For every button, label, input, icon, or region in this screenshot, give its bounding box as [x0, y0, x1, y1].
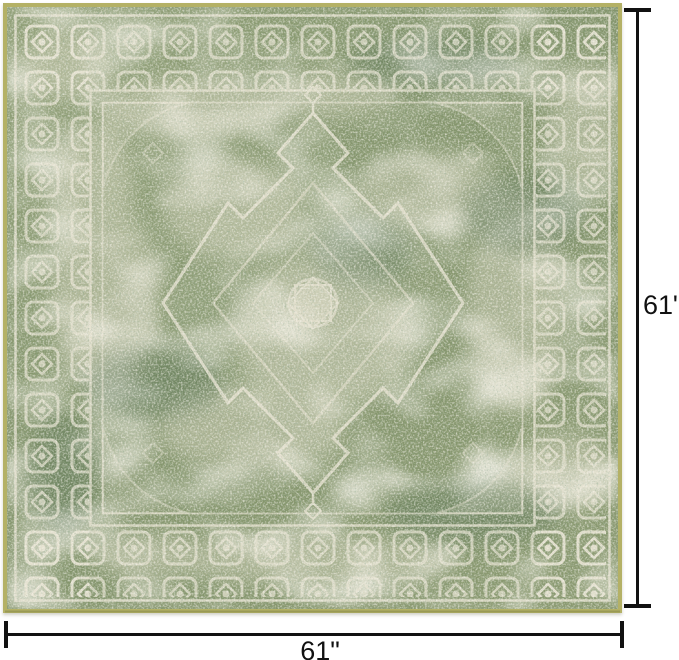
- product-photo-canvas: 61" 61": [0, 0, 679, 660]
- rug-dark-speckle: [3, 3, 622, 613]
- rug-texture: [3, 3, 622, 613]
- width-dimension-label: 61": [250, 637, 390, 660]
- height-dimension-label: 61": [643, 290, 679, 320]
- rug-image: [3, 3, 622, 613]
- height-dimension-bottom-cap: [624, 604, 651, 608]
- width-dimension-right-cap: [620, 621, 624, 648]
- height-dimension-line: [636, 10, 639, 606]
